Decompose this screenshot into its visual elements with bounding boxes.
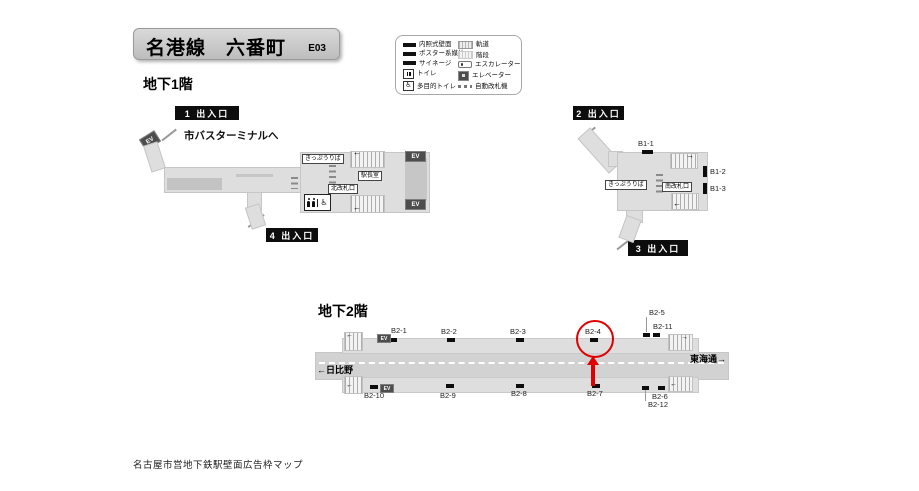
north-gate-label: 北改札口 xyxy=(328,184,358,194)
toilet-area: ♿ xyxy=(304,194,331,211)
ad-position-b1-2 xyxy=(703,166,707,177)
ad-label-b1-1: B1-1 xyxy=(638,139,654,148)
legend-right-column: 軌道 階段 エスカレーター エレベーター 自動改札機 xyxy=(458,41,521,90)
ad-position-b2-6 xyxy=(658,386,665,390)
ad-label-b2-7: B2-7 xyxy=(587,389,603,398)
ad-position-b2-11 xyxy=(653,333,660,337)
track-icon xyxy=(458,41,473,49)
north-ticket-machines-label: きっぷうりば xyxy=(302,154,344,164)
b2-track xyxy=(315,352,729,380)
station-office-label: 駅長室 xyxy=(358,171,382,181)
legend-item: エスカレーター xyxy=(458,61,521,68)
stairs-arrow-left: ← xyxy=(353,149,361,157)
stairs-arrow-left: ← xyxy=(346,332,353,339)
station-title-box: 名港線 六番町 E03 xyxy=(133,28,340,60)
legend-label: エレベーター xyxy=(472,72,511,79)
lit-wall-icon xyxy=(403,43,416,47)
stairs-icon xyxy=(458,51,473,59)
ad-position-b2-12 xyxy=(642,386,649,390)
legend-label: サイネージ xyxy=(419,60,451,67)
legend-label: 軌道 xyxy=(476,41,489,48)
female-icon xyxy=(312,201,315,207)
ad-position-b1-1 xyxy=(642,150,653,154)
legend-label: 内照式壁面 xyxy=(419,41,452,48)
ad-label-b2-5: B2-5 xyxy=(649,308,665,317)
corridor-divider xyxy=(236,174,273,177)
legend-box: 内照式壁面 ポスター系媒体 サイネージ トイレ ♿多目的トイレ 軌道 階段 エス… xyxy=(395,35,522,95)
legend-item: エレベーター xyxy=(458,71,521,81)
exit-1-badge: 1 出入口 xyxy=(175,106,239,120)
exit-1-corridor xyxy=(143,141,166,172)
south-gate-label: 南改札口 xyxy=(662,182,692,192)
ad-label-b2-12: B2-12 xyxy=(648,400,668,409)
ad-position-b2-5 xyxy=(643,333,650,337)
elevator-badge: EV xyxy=(405,199,426,210)
exit-2-badge: 2 出入口 xyxy=(573,106,624,120)
ad-position-b2-2 xyxy=(447,338,455,342)
stairs-arrow-right: → xyxy=(686,152,694,160)
male-icon xyxy=(307,201,310,207)
direction-tokaidori: 東海通→ xyxy=(690,352,726,365)
station-code: E03 xyxy=(308,43,326,54)
signage-icon xyxy=(403,61,416,65)
exit-3-corridor-slope xyxy=(618,215,641,243)
legend-item: 軌道 xyxy=(458,41,521,49)
north-ticket-gates xyxy=(329,165,336,184)
ad-position-b2-10 xyxy=(370,385,378,389)
exit-1-path-tick xyxy=(161,129,176,141)
elevator-badge: EV xyxy=(380,384,394,393)
corridor-gate-marks xyxy=(291,177,298,189)
legend-left-column: 内照式壁面 ポスター系媒体 サイネージ トイレ ♿多目的トイレ xyxy=(403,41,465,91)
highlight-circle-b2-4 xyxy=(576,320,614,358)
ad-label-b2-8: B2-8 xyxy=(511,389,527,398)
legend-label: 階段 xyxy=(476,52,489,59)
ad-label-b2-11: B2-11 xyxy=(653,322,672,331)
b2-floor-heading: 地下2階 xyxy=(318,301,368,321)
legend-label: エスカレーター xyxy=(475,61,521,68)
b2-track-centerline xyxy=(319,362,724,364)
legend-item: 内照式壁面 xyxy=(403,41,465,48)
south-ticket-machines-label: きっぷうりば xyxy=(605,180,647,190)
legend-item: ♿多目的トイレ xyxy=(403,81,465,91)
poster-media-icon xyxy=(403,52,416,56)
legend-item: サイネージ xyxy=(403,60,465,67)
wheelchair-icon: ♿ xyxy=(317,199,327,207)
footer-caption: 名古屋市営地下鉄駅壁面広告枠マップ xyxy=(133,457,303,471)
legend-item: ポスター系媒体 xyxy=(403,50,465,57)
toilet-icon xyxy=(403,69,414,79)
legend-item: 階段 xyxy=(458,51,521,59)
stairs-arrow-left: ← xyxy=(670,381,677,388)
ad-label-b1-3: B1-3 xyxy=(710,184,726,193)
ad-leader-b2-5 xyxy=(646,317,647,332)
ad-label-b1-2: B1-2 xyxy=(710,167,726,176)
exit-3-badge: 3 出入口 xyxy=(628,240,688,256)
ad-leader-b2-12 xyxy=(645,390,646,401)
elevator-icon xyxy=(458,71,469,81)
ad-label-b2-9: B2-9 xyxy=(440,391,456,400)
ad-label-b2-2: B2-2 xyxy=(441,327,457,336)
elevator-badge: EV xyxy=(377,334,391,343)
ticket-gate-icon xyxy=(458,85,472,88)
exit-4-badge: 4 出入口 xyxy=(266,228,318,242)
ad-label-b2-3: B2-3 xyxy=(510,327,526,336)
elevator-badge: EV xyxy=(405,151,426,162)
legend-item: 自動改札機 xyxy=(458,83,521,90)
stairs-arrow-left: ← xyxy=(346,382,353,389)
station-title: 名港線 六番町 xyxy=(146,33,286,60)
legend-label: 多目的トイレ xyxy=(417,83,456,90)
ad-label-b2-1: B2-1 xyxy=(391,326,407,335)
legend-item: トイレ xyxy=(403,69,465,79)
escalator-icon xyxy=(458,61,472,68)
legend-label: 自動改札機 xyxy=(475,83,508,90)
stairs-arrow-right: → xyxy=(681,334,688,341)
highlight-arrow-shaft xyxy=(591,364,595,386)
ad-position-b2-9 xyxy=(446,384,454,388)
ad-position-b2-3 xyxy=(516,338,524,342)
stairs-arrow-left: ← xyxy=(673,200,681,208)
legend-label: トイレ xyxy=(417,70,437,77)
ad-position-b2-8 xyxy=(516,384,524,388)
north-corridor-dark-area xyxy=(167,178,222,190)
station-ad-map: 名港線 六番町 E03 内照式壁面 ポスター系媒体 サイネージ トイレ ♿多目的… xyxy=(0,0,919,491)
direction-hibino: ←日比野 xyxy=(317,363,353,376)
ad-position-b1-3 xyxy=(703,183,707,194)
stairs-arrow-left: ← xyxy=(353,204,361,212)
accessible-toilet-icon: ♿ xyxy=(403,81,414,91)
b1-floor-heading: 地下1階 xyxy=(143,74,193,94)
north-concourse-right-strip xyxy=(405,158,427,201)
bus-terminal-label: 市バスターミナルへ xyxy=(184,128,279,143)
